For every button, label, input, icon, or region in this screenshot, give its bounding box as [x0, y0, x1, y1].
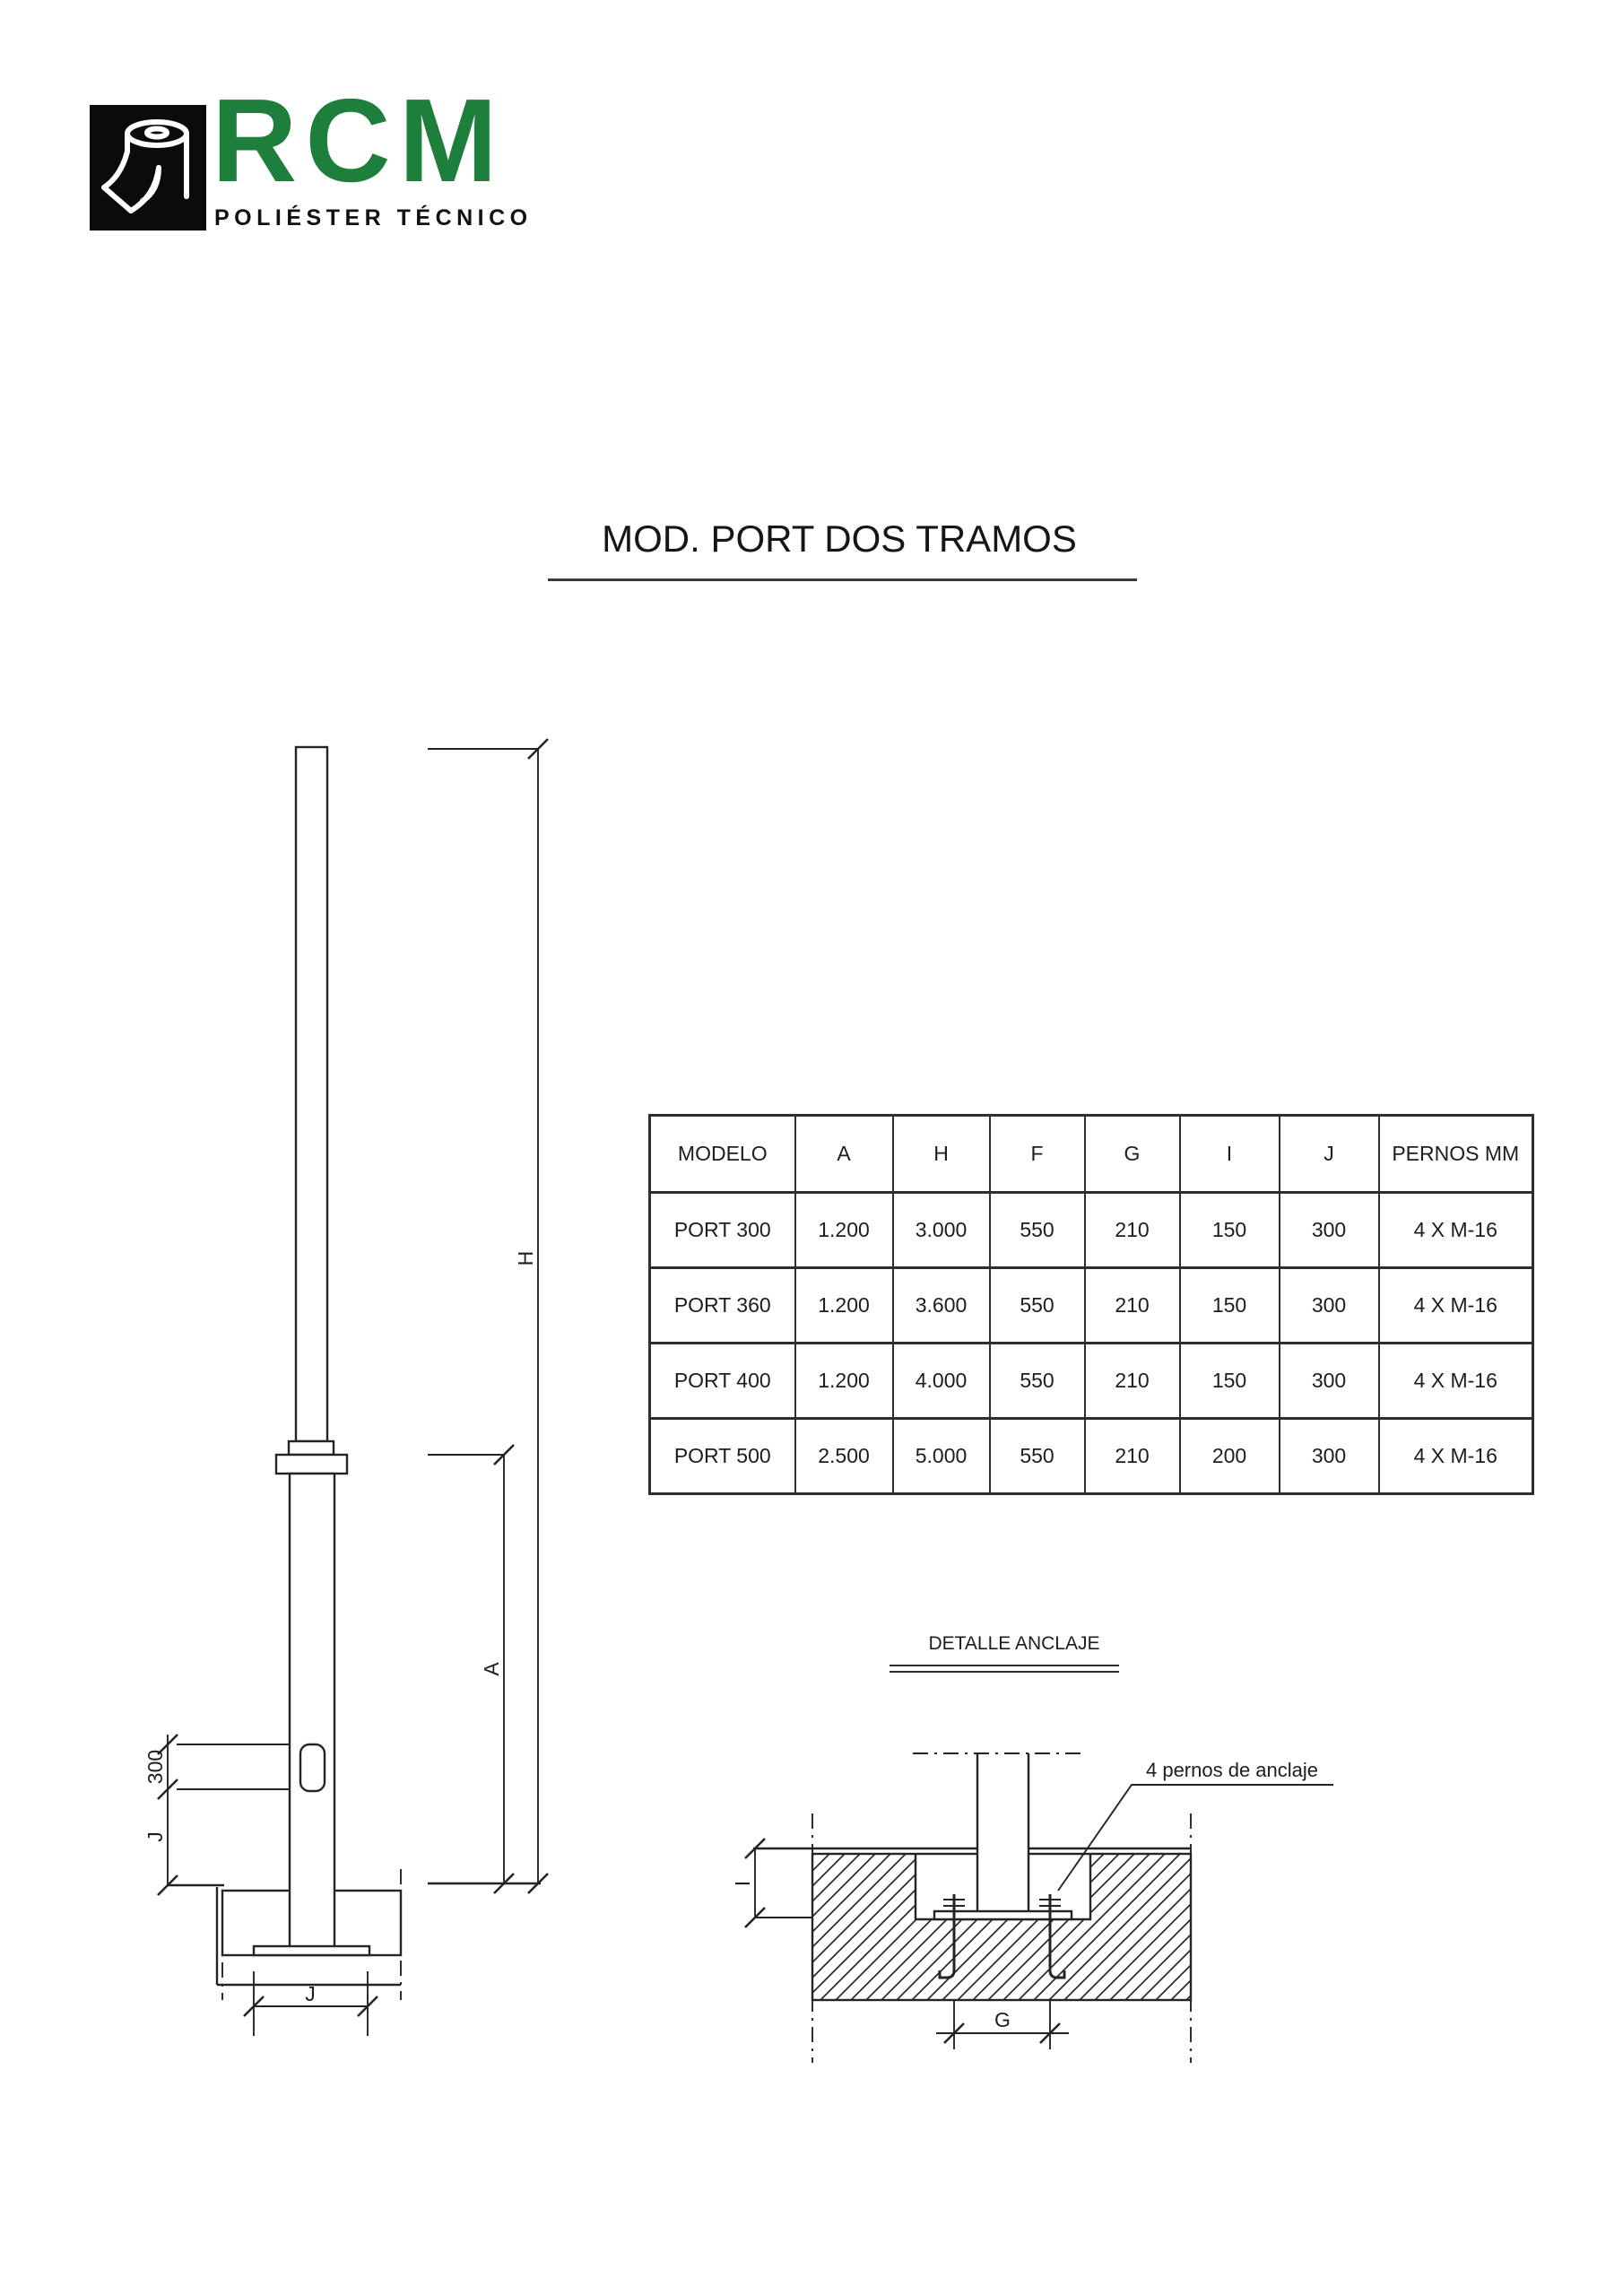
- ground-lines: [168, 1869, 541, 2000]
- table-cell-h: 3.000: [893, 1193, 990, 1268]
- logo-mark: [90, 105, 206, 230]
- table-cell-j: 300: [1280, 1344, 1379, 1419]
- table-cell-g: 210: [1085, 1344, 1180, 1419]
- table-cell-a: 1.200: [795, 1344, 893, 1419]
- table-cell-h: 4.000: [893, 1344, 990, 1419]
- dim-h-label: H: [514, 1251, 537, 1266]
- spec-table: MODELO A H F G I J PERNOS MM PORT 300 1.…: [648, 1114, 1534, 1495]
- table-header-f: F: [990, 1116, 1085, 1193]
- dim-door-and-side: 300 J: [143, 1735, 290, 1895]
- table-cell-pernos: 4 X M-16: [1379, 1268, 1533, 1344]
- page-title: MOD. PORT DOS TRAMOS: [565, 517, 1114, 561]
- dim-i-label: I: [735, 1881, 754, 1886]
- dim-j-base-label: J: [305, 1982, 316, 2005]
- dim-h: H: [428, 739, 548, 1893]
- table-header-g: G: [1085, 1116, 1180, 1193]
- anchor-detail-title: DETALLE ANCLAJE: [898, 1633, 1131, 1655]
- table-row-port400: PORT 400 1.200 4.000 550 210 150 300 4 X…: [650, 1344, 1533, 1419]
- table-header-j: J: [1280, 1116, 1379, 1193]
- title-underline: [548, 578, 1137, 581]
- table-row-port500: PORT 500 2.500 5.000 550 210 200 300 4 X…: [650, 1419, 1533, 1494]
- table-row-port300: PORT 300 1.200 3.000 550 210 150 300 4 X…: [650, 1193, 1533, 1268]
- table-cell-i: 150: [1180, 1193, 1280, 1268]
- table-cell-a: 2.500: [795, 1419, 893, 1494]
- table-cell-a: 1.200: [795, 1193, 893, 1268]
- table-cell-pernos: 4 X M-16: [1379, 1344, 1533, 1419]
- table-cell-h: 5.000: [893, 1419, 990, 1494]
- pole-joint-step: [289, 1441, 334, 1455]
- table-header-pernos: PERNOS MM: [1379, 1116, 1533, 1193]
- table-cell-j: 300: [1280, 1419, 1379, 1494]
- table-cell-a: 1.200: [795, 1268, 893, 1344]
- table-cell-i: 200: [1180, 1419, 1280, 1494]
- pole-elevation-drawing: 300 J A H J: [135, 717, 565, 2063]
- table-cell-f: 550: [990, 1344, 1085, 1419]
- table-cell-i: 150: [1180, 1268, 1280, 1344]
- dim-i: I: [735, 1839, 812, 1927]
- table-cell-g: 210: [1085, 1268, 1180, 1344]
- table-cell-g: 210: [1085, 1419, 1180, 1494]
- dim-300-label: 300: [143, 1750, 167, 1784]
- pole-upper-section: [296, 747, 327, 1441]
- table-cell-model: PORT 500: [650, 1419, 795, 1494]
- pole-lower-section: [290, 1474, 334, 1948]
- dim-g-label: G: [994, 2008, 1011, 2031]
- datasheet-page: { "page": { "background": "#ffffff", "in…: [0, 0, 1623, 2296]
- table-cell-f: 550: [990, 1419, 1085, 1494]
- table-header-row: MODELO A H F G I J PERNOS MM: [650, 1116, 1533, 1193]
- table-cell-g: 210: [1085, 1193, 1180, 1268]
- table-cell-f: 550: [990, 1193, 1085, 1268]
- dim-g: G: [936, 2000, 1069, 2049]
- dim-j-side-label: J: [143, 1831, 167, 1842]
- table-cell-model: PORT 400: [650, 1344, 795, 1419]
- table-row-port360: PORT 360 1.200 3.600 550 210 150 300 4 X…: [650, 1268, 1533, 1344]
- dim-a-label: A: [480, 1662, 503, 1676]
- table-cell-f: 550: [990, 1268, 1085, 1344]
- table-cell-model: PORT 300: [650, 1193, 795, 1268]
- table-header-h: H: [893, 1116, 990, 1193]
- anchor-detail-drawing: I G 4 pernos de anclaje: [735, 1731, 1542, 2072]
- table-cell-j: 300: [1280, 1268, 1379, 1344]
- pole-base-plate: [254, 1946, 369, 1955]
- brand-tagline: POLIÉSTER TÉCNICO: [214, 205, 530, 231]
- brand-text: RCM: [212, 79, 534, 204]
- bolt-callout-label: 4 pernos de anclaje: [1146, 1759, 1318, 1781]
- table-header-modelo: MODELO: [650, 1116, 795, 1193]
- table-header-a: A: [795, 1116, 893, 1193]
- table-cell-pernos: 4 X M-16: [1379, 1419, 1533, 1494]
- table-cell-pernos: 4 X M-16: [1379, 1193, 1533, 1268]
- polyester-roll-icon: [90, 105, 206, 230]
- table-cell-i: 150: [1180, 1344, 1280, 1419]
- table-header-i: I: [1180, 1116, 1280, 1193]
- detail-pole: [977, 1753, 1028, 1911]
- dim-j-base: J: [244, 1971, 378, 2036]
- table-cell-j: 300: [1280, 1193, 1379, 1268]
- anchor-detail-underline: [890, 1665, 1119, 1673]
- pole-joint-collar: [276, 1455, 347, 1474]
- table-cell-model: PORT 360: [650, 1268, 795, 1344]
- dim-a: A: [428, 1445, 514, 1893]
- table-cell-h: 3.600: [893, 1268, 990, 1344]
